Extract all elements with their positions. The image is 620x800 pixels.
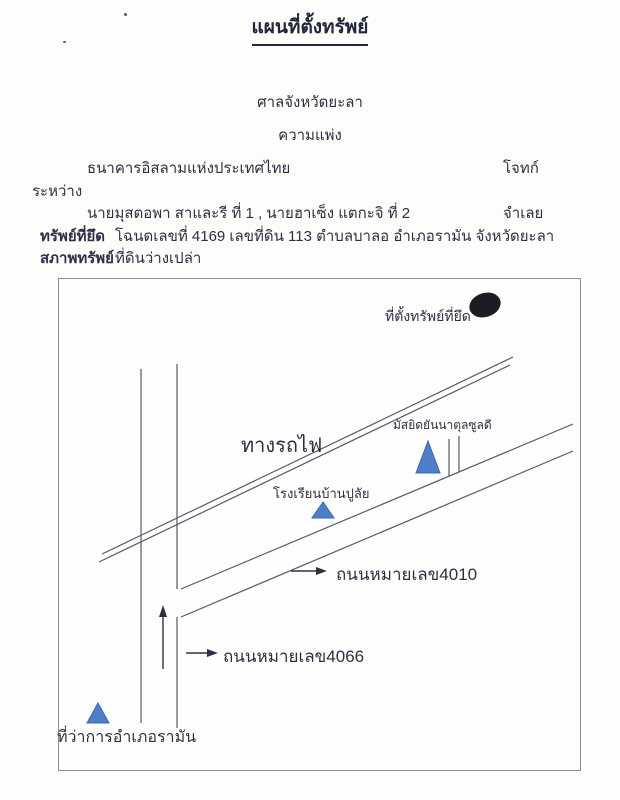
plaintiff-role: โจทก์	[503, 156, 539, 180]
between-label: ระหว่าง	[32, 179, 82, 203]
railway-label: ทางรถไฟ	[241, 429, 322, 461]
title-row: แผนที่ตั้งทรัพย์	[0, 12, 620, 46]
defendant-role: จำเลย	[503, 201, 543, 225]
property-marker	[466, 289, 504, 322]
mosque-lane	[449, 436, 459, 476]
district-office-marker	[87, 703, 109, 723]
school-label: โรงเรียนบ้านปูลัย	[273, 483, 370, 504]
district-office-label: ที่ว่าการอำเภอรามัน	[57, 725, 196, 750]
school-marker	[312, 502, 334, 518]
north-up-arrow	[159, 605, 167, 669]
property-condition-value: ที่ดินว่างเปล่า	[115, 246, 201, 270]
page-title: แผนที่ตั้งทรัพย์	[252, 12, 369, 46]
case-type: ความแพ่ง	[0, 123, 620, 147]
property-marker-label: ที่ตั้งทรัพย์ที่ยึด	[385, 306, 471, 328]
mosque-marker	[416, 441, 440, 473]
map-drawing	[59, 279, 580, 770]
property-condition-label: สภาพทรัพย์	[40, 246, 114, 270]
plaintiff-name: ธนาคารอิสลามแห่งประเทศไทย	[87, 156, 290, 180]
property-location-map: ที่ตั้งทรัพย์ที่ยึด ทางรถไฟ มัสยิดยันนาต…	[58, 278, 581, 771]
vertical-road	[141, 364, 177, 728]
mosque-label: มัสยิดยันนาตุลซูลดี	[393, 416, 492, 435]
seized-property-value: โฉนดเลขที่ 4169 เลขที่ดิน 113 ตำบลบาลอ อ…	[115, 224, 554, 248]
road-4010-line	[181, 424, 573, 617]
road-4066-label: ถนนหมายเลข4066	[223, 643, 364, 670]
seized-property-label: ทรัพย์ที่ยึด	[40, 224, 105, 248]
road-4066-arrow	[186, 649, 218, 657]
defendant-name: นายมุสตอพา สาและรี ที่ 1 , นายฮาเซ็ง แตก…	[87, 201, 410, 225]
road-4010-label: ถนนหมายเลข4010	[336, 561, 477, 588]
court-name: ศาลจังหวัดยะลา	[0, 90, 620, 114]
